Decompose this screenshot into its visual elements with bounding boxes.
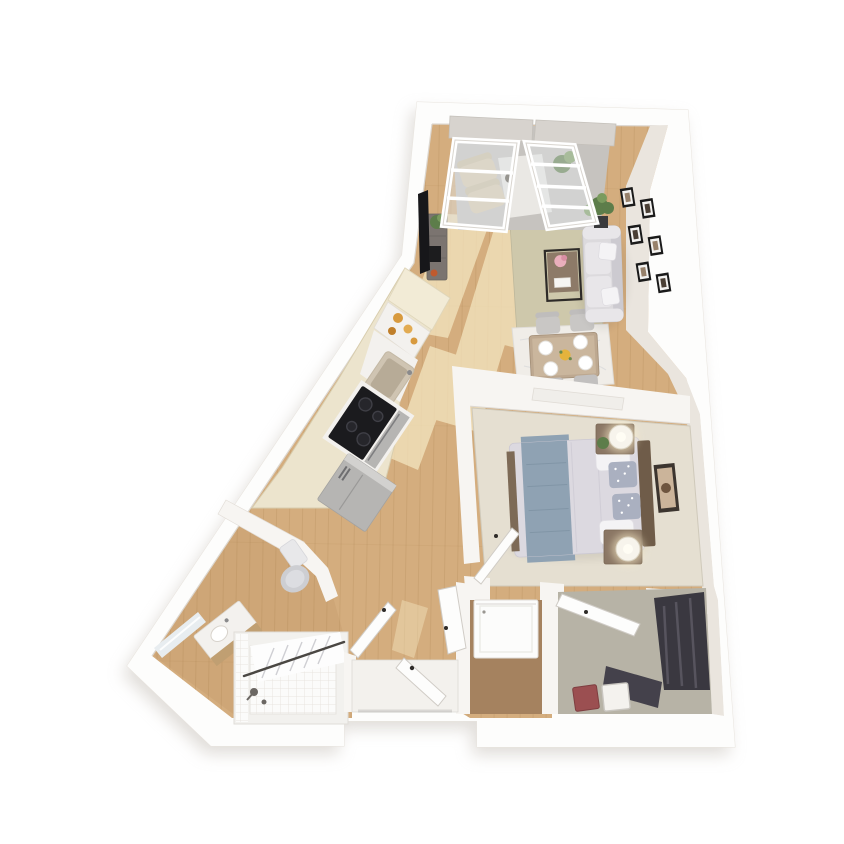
storage-box-white	[602, 683, 631, 712]
bathtub-shower	[234, 632, 348, 724]
door-handle	[410, 666, 414, 670]
plate	[578, 356, 593, 371]
door-handle	[584, 610, 588, 614]
floor-plan-page	[0, 0, 844, 844]
window-mullion	[537, 186, 586, 188]
door-handle	[444, 626, 448, 630]
shower-tile-wall	[236, 634, 248, 722]
door-handle	[494, 534, 498, 538]
laundry-divider-wall	[542, 598, 558, 714]
plate	[573, 335, 588, 350]
book	[554, 278, 570, 288]
floor-plan-render	[0, 0, 844, 844]
dining-table	[529, 332, 599, 379]
gray-blanket	[521, 440, 573, 556]
nightstand-plant	[597, 437, 609, 449]
speaker	[429, 246, 441, 262]
shower-handle	[262, 700, 267, 705]
plate	[543, 361, 558, 376]
door-handle	[382, 608, 386, 612]
window-panel	[443, 140, 517, 230]
floral-pillow	[612, 493, 641, 520]
walk-in-closet	[556, 588, 712, 714]
laundry-closet	[470, 598, 558, 714]
lamp-top	[623, 544, 633, 554]
window-mullion	[531, 164, 580, 166]
orange-decor	[431, 270, 438, 277]
washer	[474, 600, 538, 658]
bedroom	[452, 366, 708, 614]
storage-box-maroon	[572, 684, 599, 711]
nightstand	[596, 421, 637, 454]
dining-chair	[535, 311, 560, 335]
window-mullion	[542, 206, 591, 208]
plate	[538, 341, 553, 356]
throw-pillow	[598, 242, 617, 261]
lamp-top	[616, 432, 626, 442]
tv	[418, 190, 430, 274]
sofa	[582, 225, 623, 322]
floral-pillow	[608, 461, 637, 488]
throw-pillow	[601, 286, 620, 305]
nightstand	[604, 530, 644, 565]
sofa-arm	[585, 308, 623, 322]
